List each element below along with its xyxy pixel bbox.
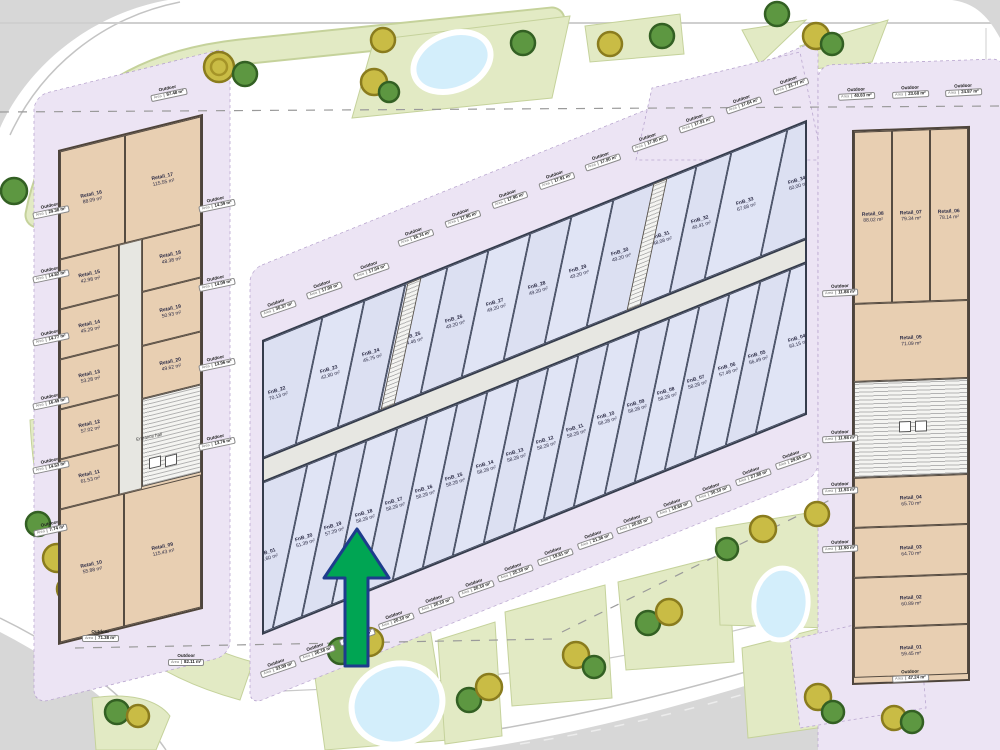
unit: Retail_0364.70 m²	[854, 524, 968, 578]
unit: Retail_0888.02 m²	[854, 131, 892, 304]
tree-icon	[204, 52, 234, 82]
unit-area: 88.02 m²	[862, 217, 884, 224]
unit-area: 78.14 m²	[938, 214, 960, 221]
unit: Retail_09115.43 m²	[124, 474, 201, 626]
tree-icon	[901, 711, 923, 733]
outdoor-area-label: OutdoorArea71.38 m²	[82, 630, 119, 642]
green-bed	[505, 585, 612, 706]
elevator-icon	[165, 453, 177, 467]
arrow-shape	[324, 529, 389, 666]
tree-icon	[650, 24, 674, 48]
outdoor-area-label: OutdoorArea14.09 m²	[198, 273, 236, 292]
building-left-retail: Retail_1688.09 m²Retail_17115.55 m² Reta…	[58, 114, 203, 645]
outdoor-area-label: OutdoorArea14.77 m²	[31, 328, 69, 347]
elevator-icon	[915, 420, 927, 431]
tree-icon	[511, 31, 535, 55]
outdoor-area-label: OutdoorArea11.90 m²	[822, 539, 859, 553]
right-bottom-units: Retail_0465.70 m²Retail_0364.70 m²Retail…	[854, 474, 968, 678]
location-arrow-icon	[320, 526, 394, 670]
building-right-retail: Retail_0888.02 m²Retail_0779.34 m²Retail…	[852, 126, 970, 685]
tree-icon	[105, 700, 129, 724]
elevator-icon	[899, 421, 911, 432]
left-mid-section: Retail_1542.98 m²Retail_1445.29 m²Retail…	[60, 224, 201, 509]
outdoor-area-label: OutdoorArea23.68 m²	[891, 85, 928, 99]
tree-icon	[805, 502, 829, 526]
tree-icon	[379, 82, 399, 102]
tree-icon	[598, 32, 622, 56]
elevator-icon	[149, 455, 161, 469]
tree-icon	[765, 2, 789, 26]
outdoor-area-label: OutdoorArea47.24 m²	[892, 669, 929, 683]
left-west-units: Retail_1542.98 m²Retail_1445.29 m²Retail…	[60, 245, 119, 510]
site-plan: Retail_1688.09 m²Retail_17115.55 m² Reta…	[0, 0, 1000, 750]
tree-icon	[127, 705, 149, 727]
tree-icon	[233, 62, 257, 86]
outdoor-area-label: OutdoorArea82.11 m²	[168, 654, 204, 666]
right-mid-units: Retail_0571.09 m²	[854, 300, 968, 382]
unit: Retail_1688.09 m²	[60, 135, 125, 259]
left-east-units: Retail_1848.38 m²Retail_1950.93 m²Retail…	[142, 224, 201, 489]
outdoor-labels-bottom: OutdoorArea47.24 m²	[892, 669, 929, 682]
outdoor-area-label: OutdoorArea13.96 m²	[198, 353, 236, 372]
unit-area: 60.89 m²	[900, 600, 922, 607]
unit: Retail_0779.34 m²	[892, 129, 930, 302]
tree-icon	[750, 516, 776, 542]
outdoor-area-label: OutdoorArea40.83 m²	[838, 87, 875, 101]
tree-icon	[583, 656, 605, 678]
tree-icon	[822, 701, 844, 723]
outdoor-area-label: OutdoorArea11.93 m²	[822, 481, 859, 495]
unit-area: 65.70 m²	[900, 500, 922, 507]
tree-icon	[821, 33, 843, 55]
tree-icon	[716, 538, 738, 560]
outdoor-area-label: OutdoorArea14.53 m²	[31, 455, 69, 474]
tree-icon	[656, 599, 682, 625]
unit: Retail_0260.89 m²	[854, 574, 968, 628]
outdoor-labels-west: OutdoorArea29.38 m²OutdoorArea14.82 m²Ou…	[32, 199, 69, 538]
tree-icon	[476, 674, 502, 700]
unit: Retail_0571.09 m²	[854, 300, 968, 382]
right-top-units: Retail_0888.02 m²Retail_0779.34 m²Retail…	[854, 128, 968, 304]
tree-icon	[371, 28, 395, 52]
unit: Retail_17115.55 m²	[125, 116, 201, 243]
unit-area: 79.34 m²	[900, 215, 922, 222]
corridor	[119, 239, 141, 495]
road-top-right	[952, 0, 1000, 38]
tree-icon	[1, 178, 27, 204]
unit-area: 59.45 m²	[900, 650, 922, 657]
unit: Retail_0678.14 m²	[930, 128, 968, 301]
stairs-core	[854, 378, 968, 478]
outdoor-area-label: OutdoorArea24.87 m²	[945, 83, 982, 97]
outdoor-area-label: OutdoorArea11.98 m²	[822, 429, 859, 443]
outdoor-area-label: OutdoorArea14.82 m²	[31, 264, 69, 283]
outdoor-area-label: OutdoorArea11.88 m²	[822, 283, 859, 297]
unit: Retail_0465.70 m²	[854, 474, 968, 528]
outdoor-labels-east: OutdoorArea14.39 m²OutdoorArea14.09 m²Ou…	[198, 193, 235, 452]
unit: Retail_1055.88 m²	[60, 493, 124, 642]
unit-area: 64.70 m²	[900, 550, 922, 557]
unit-area: 71.09 m²	[900, 340, 922, 347]
left-east-unit-list: Retail_1848.38 m²Retail_1950.93 m²Retail…	[142, 224, 201, 399]
outdoor-area-label: OutdoorArea16.49 m²	[31, 391, 69, 410]
